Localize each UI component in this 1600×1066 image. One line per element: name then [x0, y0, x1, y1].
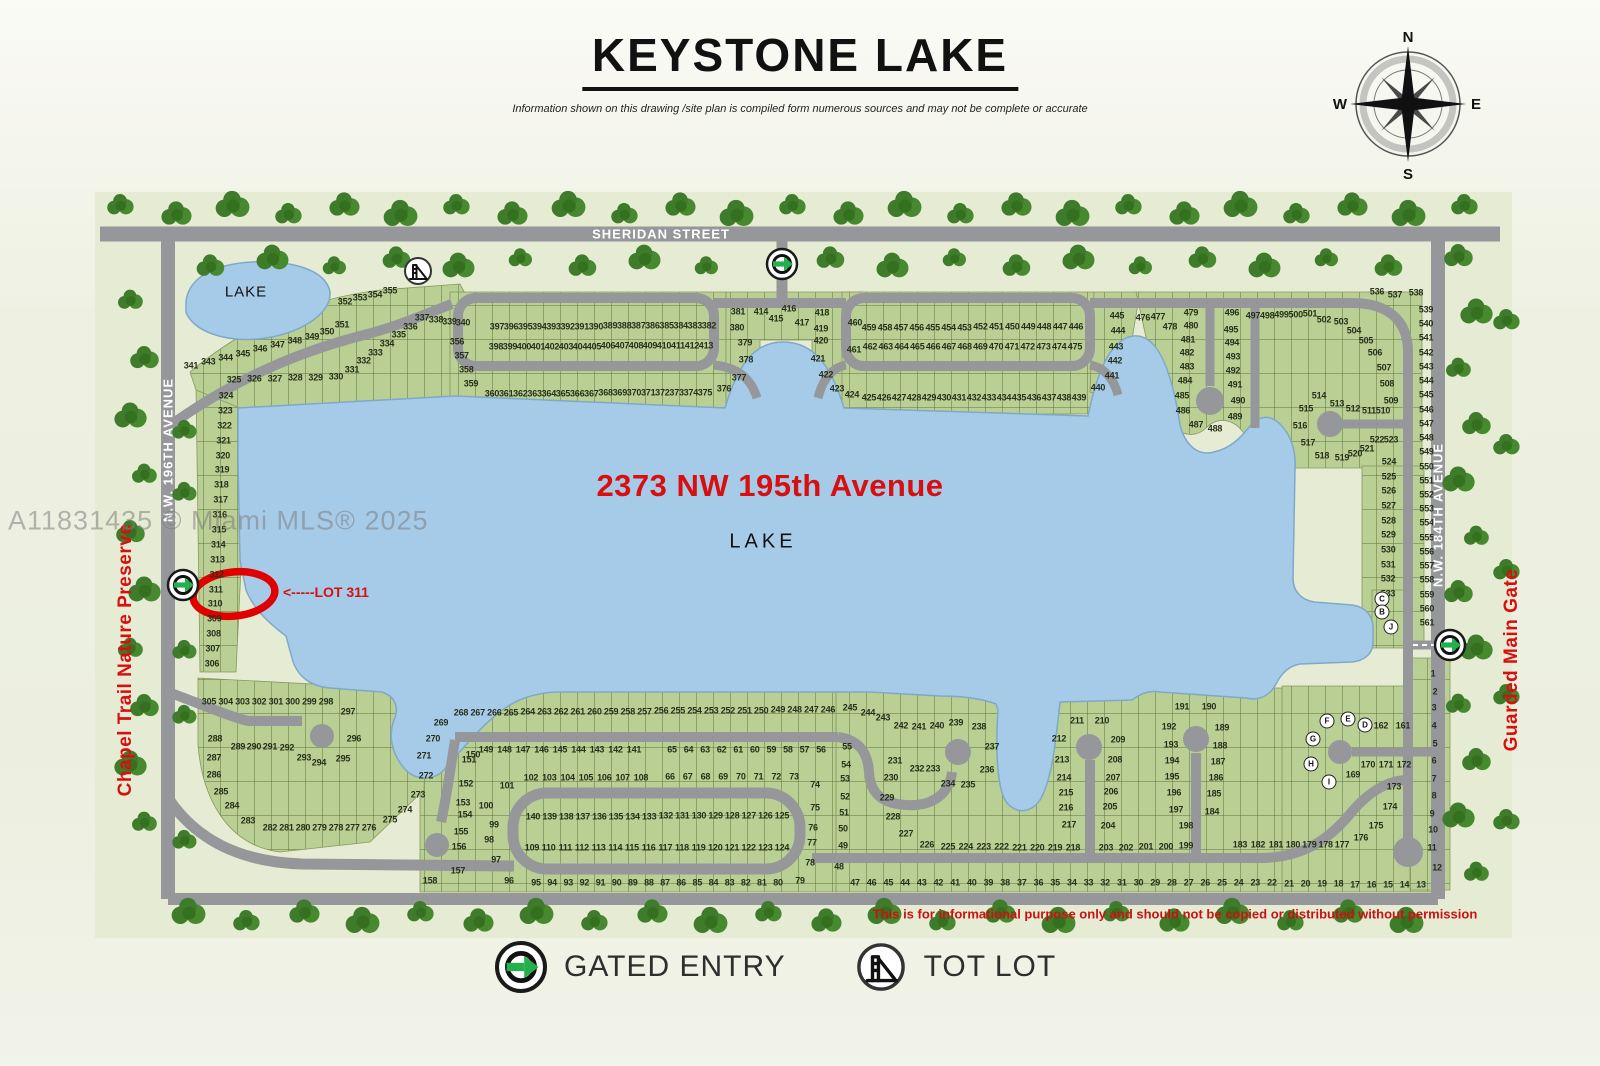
west-avenue-label: N.W. 196TH AVENUE — [161, 378, 176, 522]
compass-west-label: W — [1333, 96, 1348, 113]
legend-tot-lot-icon — [854, 940, 908, 994]
small-lake-label: LAKE — [225, 284, 267, 301]
legend-gated-entry-label: GATED ENTRY — [564, 950, 786, 984]
compass-south-label: S — [1403, 166, 1413, 183]
page-subtitle: Information shown on this drawing /site … — [512, 103, 1087, 115]
guarded-main-gate-label: Guarded Main Gate — [1501, 569, 1523, 752]
tot-lot-marker — [405, 258, 431, 284]
gated-entry-marker — [1435, 630, 1465, 660]
main-lake-label: LAKE — [729, 531, 796, 554]
page-title: KEYSTONE LAKE — [582, 28, 1018, 91]
header: KEYSTONE LAKE Information shown on this … — [512, 28, 1087, 115]
gated-entry-marker — [168, 570, 198, 600]
legend-tot-lot-label: TOT LOT — [924, 950, 1057, 984]
lot-311-callout: <-----LOT 311 — [283, 584, 369, 600]
compass-rose: N E S W — [1333, 29, 1481, 183]
legend: GATED ENTRY TOT LOT — [494, 940, 1056, 994]
disclaimer-text: This is for informational purpose only a… — [873, 907, 1478, 922]
east-avenue-label: N.W. 184TH AVENUE — [1431, 443, 1446, 587]
nature-preserve-label: Chapel Trail Nature Preserve — [115, 524, 137, 797]
lake-address-label: 2373 NW 195th Avenue — [596, 468, 943, 504]
mls-watermark: A11831435 © Miami MLS® 2025 — [8, 506, 429, 537]
compass-east-label: E — [1471, 96, 1481, 113]
compass-north-label: N — [1403, 29, 1414, 46]
site-plan-page: N E S W 32432332232132031931831731631531… — [0, 0, 1600, 1066]
legend-gated-entry-icon — [494, 940, 548, 994]
sheridan-street-label: SHERIDAN STREET — [592, 227, 730, 242]
gated-entry-marker — [767, 249, 797, 279]
